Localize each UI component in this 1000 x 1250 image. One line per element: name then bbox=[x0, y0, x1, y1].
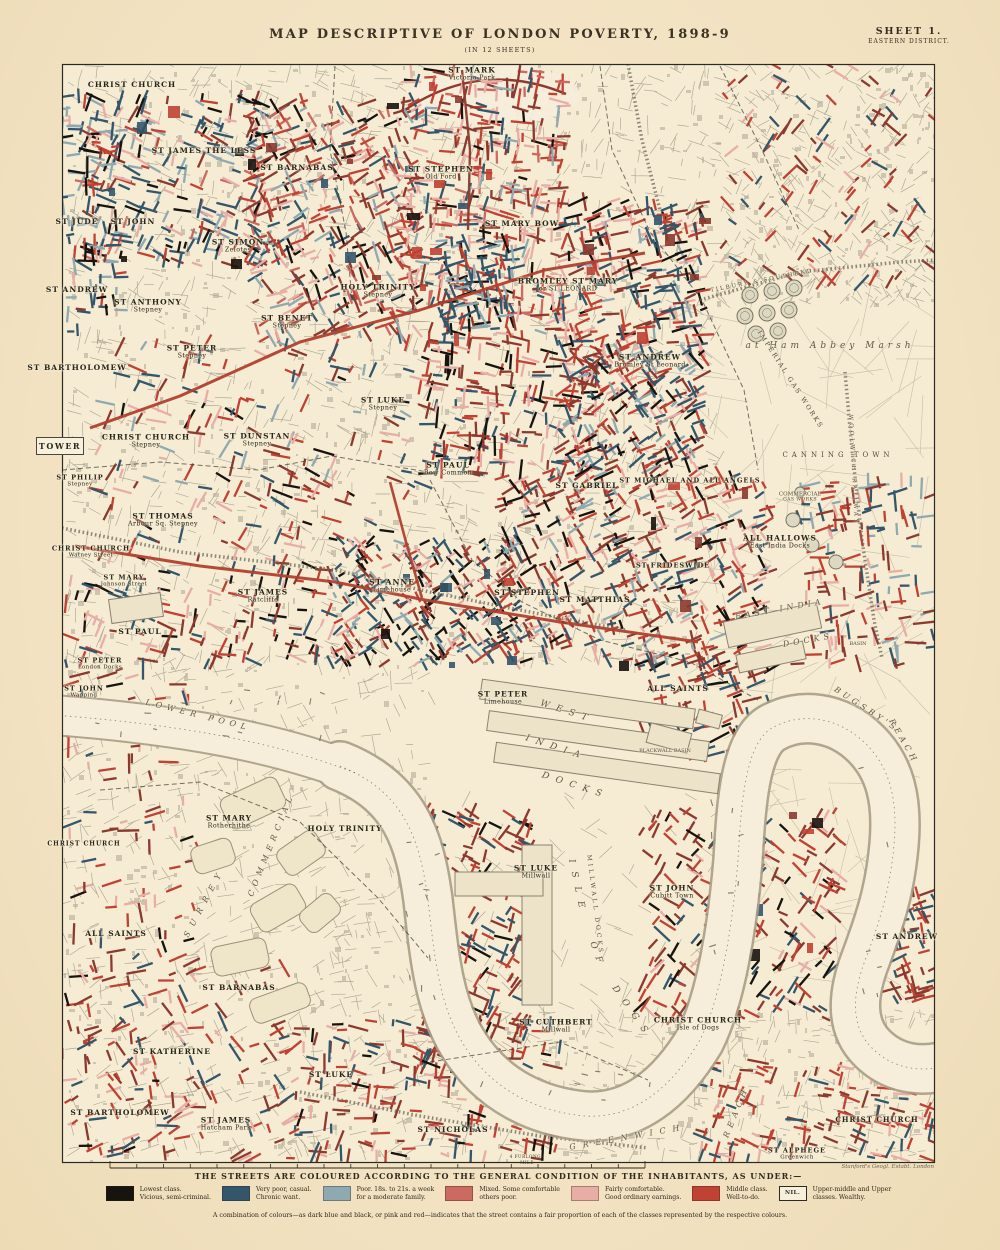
scale-bar-mile-label: MILE bbox=[520, 1160, 534, 1165]
legend-label: Poor. 18s. to 21s. a weekfor a moderate … bbox=[357, 1186, 435, 1202]
legend-swatch bbox=[571, 1186, 599, 1201]
legend-label: Mixed. Some comfortableothers poor. bbox=[479, 1186, 560, 1202]
map-canvas bbox=[0, 0, 1000, 1250]
legend-item: Lowest class.Vicious, semi-criminal. bbox=[106, 1186, 211, 1202]
legend: Lowest class.Vicious, semi-criminal.Very… bbox=[62, 1186, 935, 1202]
adjacent-sheet-label: TOWER bbox=[36, 437, 84, 455]
legend-swatch bbox=[323, 1186, 351, 1201]
legend-label: Middle class.Well-to-do. bbox=[726, 1186, 767, 1202]
legend-swatch bbox=[222, 1186, 250, 1201]
scale-bar-furlongs-label: 4 FURLONGS bbox=[510, 1154, 545, 1159]
legend-label: Very poor, casual.Chronic want. bbox=[256, 1186, 312, 1202]
legend-item: Fairly comfortable.Good ordinary earning… bbox=[571, 1186, 681, 1202]
legend-item: Poor. 18s. to 21s. a weekfor a moderate … bbox=[323, 1186, 435, 1202]
legend-item: Mixed. Some comfortableothers poor. bbox=[445, 1186, 560, 1202]
legend-label: Upper-middle and Upperclasses. Wealthy. bbox=[813, 1186, 892, 1202]
legend-item: Very poor, casual.Chronic want. bbox=[222, 1186, 312, 1202]
legend-swatch-nil: NIL. bbox=[779, 1186, 807, 1201]
legend-item: NIL.Upper-middle and Upperclasses. Wealt… bbox=[779, 1186, 892, 1202]
legend-item: Middle class.Well-to-do. bbox=[692, 1186, 767, 1202]
legend-swatch bbox=[445, 1186, 473, 1201]
legend-heading: THE STREETS ARE COLOURED ACCORDING TO TH… bbox=[62, 1171, 935, 1181]
poverty-map-sheet: MAP DESCRIPTIVE OF LONDON POVERTY, 1898-… bbox=[0, 0, 1000, 1250]
legend-swatch bbox=[106, 1186, 134, 1201]
legend-label: Fairly comfortable.Good ordinary earning… bbox=[605, 1186, 681, 1202]
legend-note: A combination of colours—as dark blue an… bbox=[150, 1212, 850, 1219]
legend-swatch bbox=[692, 1186, 720, 1201]
legend-label: Lowest class.Vicious, semi-criminal. bbox=[140, 1186, 211, 1202]
publisher-attribution: Stanford's Geogl. Estabt. London bbox=[841, 1164, 934, 1170]
